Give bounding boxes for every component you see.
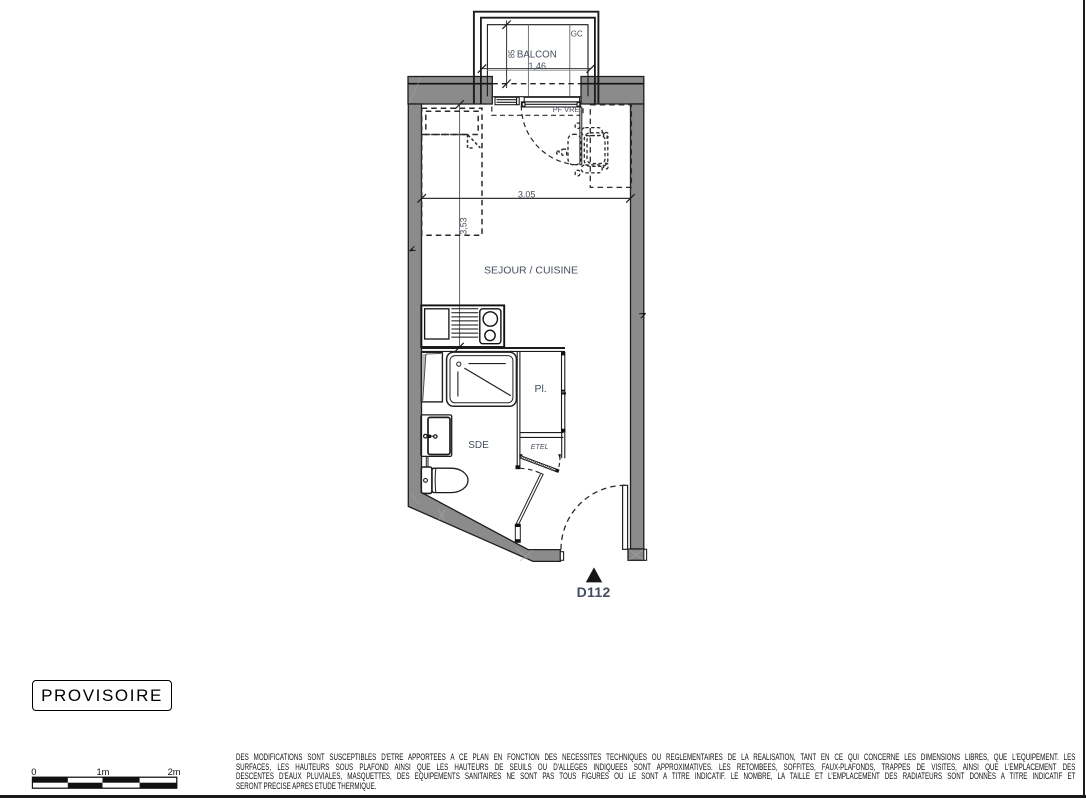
svg-text:0: 0 — [31, 767, 36, 777]
svg-text:1,46: 1,46 — [529, 61, 547, 71]
svg-text:SEJOUR / CUISINE: SEJOUR / CUISINE — [484, 264, 578, 276]
svg-text:85: 85 — [508, 49, 517, 58]
svg-text:2m: 2m — [168, 767, 181, 777]
svg-text:D112: D112 — [577, 584, 611, 600]
svg-text:ETEL: ETEL — [531, 442, 549, 451]
svg-text:3,05: 3,05 — [518, 190, 536, 200]
svg-text:PF VRE: PF VRE — [553, 105, 580, 114]
svg-text:Pl.: Pl. — [534, 383, 546, 395]
svg-text:SDE: SDE — [468, 440, 489, 451]
svg-text:BALCON: BALCON — [517, 49, 557, 60]
svg-text:GC: GC — [571, 29, 583, 38]
svg-text:1m: 1m — [97, 767, 110, 777]
svg-text:3,53: 3,53 — [458, 217, 468, 234]
